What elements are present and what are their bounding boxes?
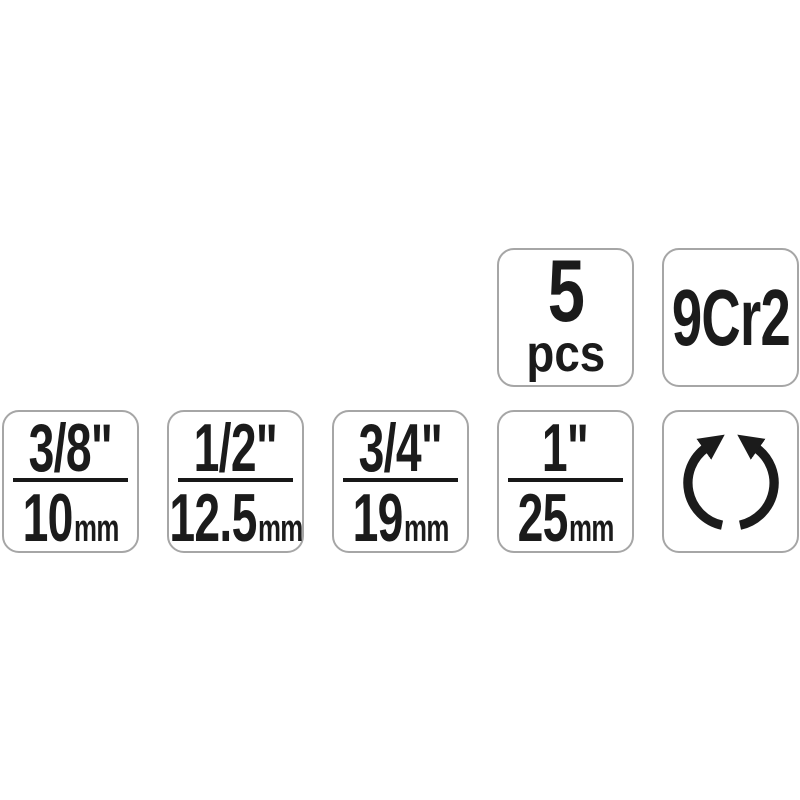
mm-size-label: 12.5 xyxy=(169,480,256,556)
mm-unit-label: mm xyxy=(73,508,119,550)
pieces-unit: pcs xyxy=(526,328,605,380)
pieces-count: 5 xyxy=(547,255,583,327)
size-badge-1-2-inch: 1/2" 12.5mm xyxy=(167,410,304,553)
size-badge-3-8-inch: 3/8" 10mm xyxy=(2,410,139,553)
inch-size-label: 1" xyxy=(542,414,588,482)
mm-unit-label: mm xyxy=(256,508,302,550)
rotate-both-directions-icon xyxy=(677,428,785,536)
size-badge-1-inch: 1" 25mm xyxy=(497,410,634,553)
pieces-count-badge: 5 pcs xyxy=(497,248,634,387)
inch-size-label: 3/4" xyxy=(359,414,442,482)
mm-size-label: 25 xyxy=(517,480,567,556)
spec-badge-strip: 5 pcs 9Cr2 3/8" 10mm 1/2" 12.5mm 3/4" 19… xyxy=(0,0,800,800)
inch-size-label: 1/2" xyxy=(194,414,277,482)
inch-size-label: 3/8" xyxy=(29,414,112,482)
mm-unit-label: mm xyxy=(568,508,614,550)
mm-unit-label: mm xyxy=(403,508,449,550)
size-badge-3-4-inch: 3/4" 19mm xyxy=(332,410,469,553)
mm-size-label: 19 xyxy=(352,480,402,556)
steel-grade-label: 9Cr2 xyxy=(671,278,789,358)
steel-grade-badge: 9Cr2 xyxy=(662,248,799,387)
rotation-badge xyxy=(662,410,799,553)
mm-size-label: 10 xyxy=(22,480,72,556)
